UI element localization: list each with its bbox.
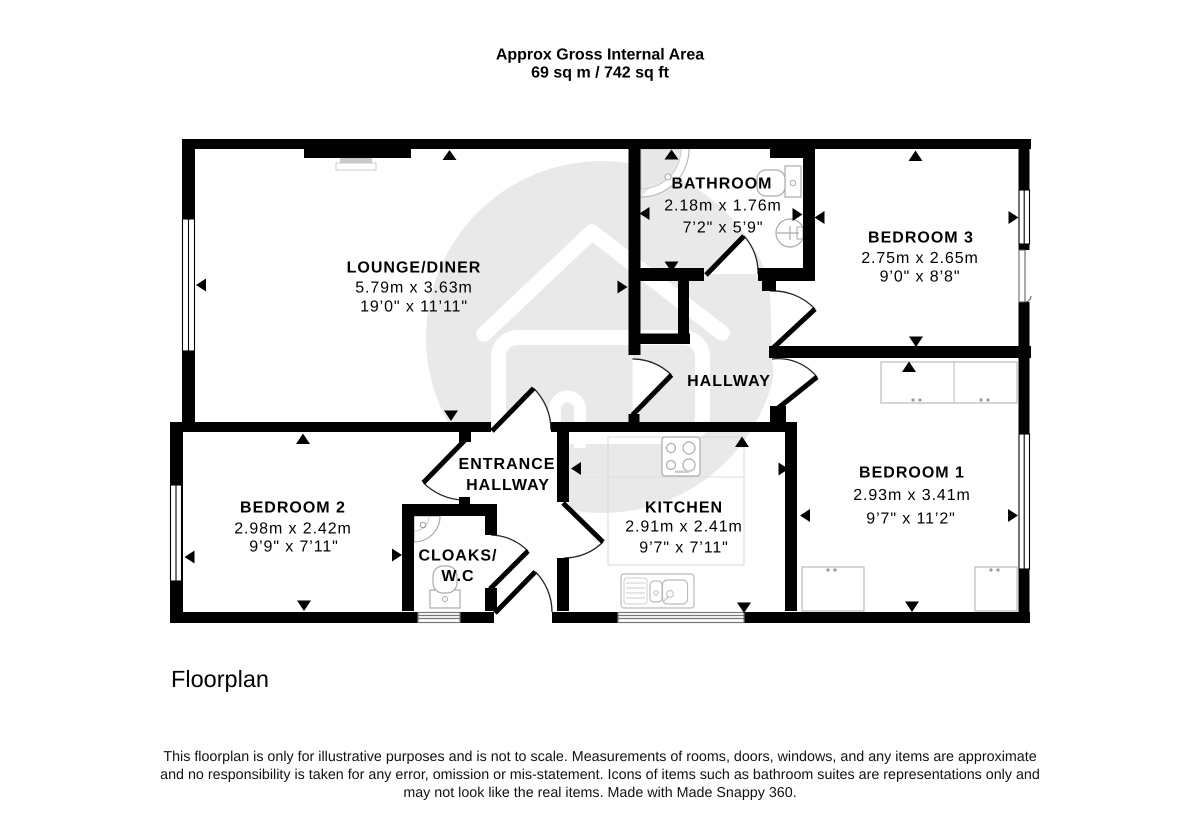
svg-text:HALLWAY: HALLWAY: [466, 477, 550, 494]
svg-text:69 sq m / 742 sq ft: 69 sq m / 742 sq ft: [531, 65, 670, 82]
svg-text:Approx Gross Internal Area: Approx Gross Internal Area: [496, 47, 704, 64]
svg-text:19’0" x 11’11": 19’0" x 11’11": [360, 299, 468, 316]
svg-text:2.98m x 2.42m: 2.98m x 2.42m: [234, 521, 352, 538]
svg-text:9’0" x 8’8": 9’0" x 8’8": [880, 269, 961, 286]
svg-text:5.79m x 3.63m: 5.79m x 3.63m: [355, 280, 473, 297]
svg-text:ENTRANCE: ENTRANCE: [459, 456, 556, 473]
svg-text:9’9" x 7’11": 9’9" x 7’11": [249, 539, 338, 556]
svg-text:BATHROOM: BATHROOM: [671, 176, 772, 193]
svg-text:7’2" x 5’9": 7’2" x 5’9": [683, 220, 764, 237]
svg-text:Floorplan: Floorplan: [171, 666, 269, 692]
svg-text:9’7" x 7’11": 9’7" x 7’11": [639, 540, 728, 557]
svg-text:BEDROOM 3: BEDROOM 3: [868, 230, 974, 247]
svg-text:This floorplan is only for ill: This floorplan is only for illustrative …: [163, 749, 1036, 765]
svg-text:BEDROOM 2: BEDROOM 2: [240, 500, 346, 517]
svg-text:CLOAKS/: CLOAKS/: [419, 548, 498, 565]
svg-text:LOUNGE/DINER: LOUNGE/DINER: [347, 260, 482, 277]
svg-text:may not look like the real ite: may not look like the real items. Made w…: [403, 785, 796, 801]
svg-text:2.91m x 2.41m: 2.91m x 2.41m: [625, 519, 743, 536]
svg-text:2.75m x 2.65m: 2.75m x 2.65m: [861, 250, 979, 267]
svg-text:2.93m x 3.41m: 2.93m x 3.41m: [853, 487, 971, 504]
svg-text:and no responsibility is taken: and no responsibility is taken for any e…: [160, 767, 1040, 783]
svg-text:9’7" x 11’2": 9’7" x 11’2": [866, 511, 955, 528]
svg-text:W.C: W.C: [441, 568, 474, 585]
svg-text:BEDROOM 1: BEDROOM 1: [859, 465, 965, 482]
svg-text:KITCHEN: KITCHEN: [645, 500, 723, 517]
svg-text:HALLWAY: HALLWAY: [687, 373, 771, 390]
svg-text:2.18m x 1.76m: 2.18m x 1.76m: [664, 198, 782, 215]
